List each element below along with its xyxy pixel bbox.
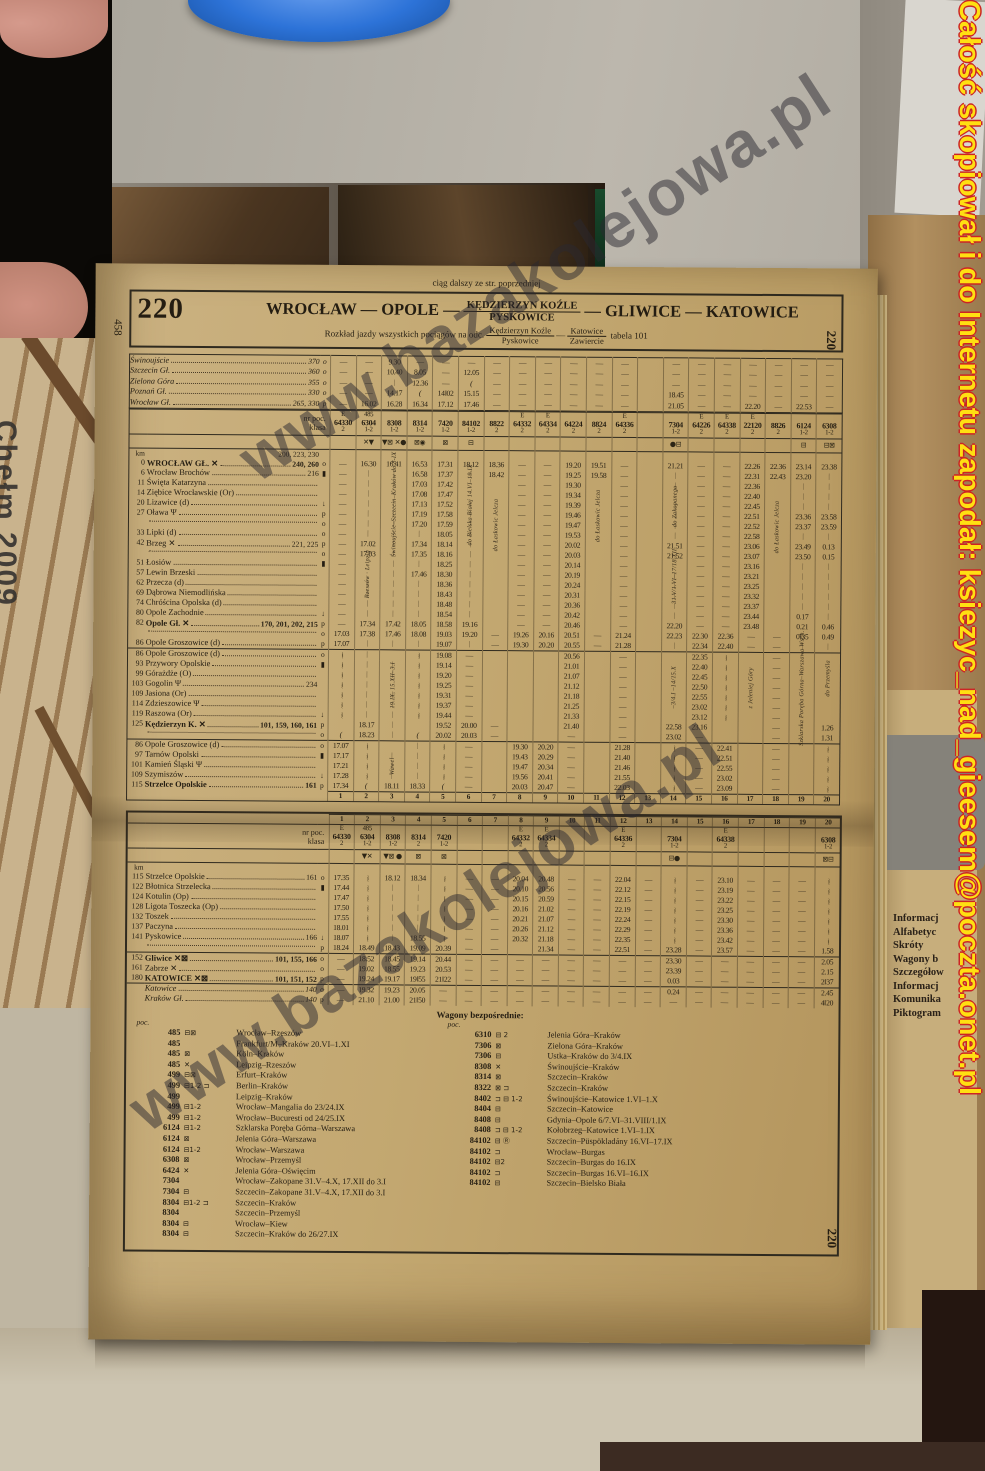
wavy-mark: ~~~ [672,908,676,913]
time-cell [764,561,790,571]
wavy-mark: ~~~ [723,655,727,660]
time-cell: 23.07 [739,551,765,561]
train-icons [535,436,561,450]
time-cell: 20.03 [456,730,482,741]
time-cell: ~~~ [354,873,380,883]
dots-leader [147,732,315,734]
time-cell [507,731,533,742]
route-note-vertical: do Zakopanego [671,485,680,527]
time-cell: ( [458,378,484,389]
time-cell: | [380,559,406,569]
time-cell: | [380,579,406,589]
stop-mark [319,478,330,488]
coach-icons: ⊟ Ⓡ [495,1136,547,1147]
time-cell: — [689,369,715,380]
time-cell: — [738,631,764,641]
time-cell [379,740,405,751]
km-cell [128,627,146,637]
train-icons [636,851,662,865]
station-inner: Przecza (d) [146,578,318,588]
train-number-cell: E221202 [740,413,766,438]
time-cell: ~~~ [661,935,687,945]
train-number: 8314 [447,1072,495,1083]
time-cell: — [635,966,661,976]
train-class: 2 [484,427,509,435]
column-number: 4 [406,814,432,824]
wavy-mark: ~~~ [416,653,420,658]
time-cell [482,710,508,720]
time-cell: 22.43 [765,471,791,481]
station-name: Brzeg ✕ [146,537,175,547]
time-cell: — [789,916,815,926]
km-cell: 115 [127,779,145,790]
time-cell: — [456,700,482,710]
train-icons [610,851,636,865]
time-cell: ( [405,730,431,741]
station-name: Lizawice (d) [147,498,190,507]
time-cell: 22.53 [791,401,817,412]
time-cell: 21.05 [663,400,689,411]
time-cell [636,551,662,561]
station-cell: Brzeg ✕221, 225 [146,537,318,548]
time-cell: — [482,943,508,954]
stop-mark: ↓ [317,709,328,719]
time-cell: 22.40 [713,641,739,652]
time-cell: 17.52 [432,499,458,509]
spacer [663,451,689,461]
time-cell: 2.05 [814,956,840,967]
wavy-mark: ~~~ [825,777,829,782]
time-cell: — [481,974,507,985]
time-cell: 23.39 [661,966,687,976]
station-cell: Dąbrowa Niemodlińska [146,587,318,598]
time-cell: — [610,620,636,630]
time-cell: | [457,639,483,650]
spacer [714,452,740,462]
train-number: 6304 [355,833,380,841]
time-cell: 22.45 [739,501,765,511]
spacer [764,866,790,876]
time-cell: | [406,579,432,589]
time-cell: –3/4.I –14/15.X [661,682,687,692]
time-cell: 18.30 [431,569,457,579]
time-cell: — [609,975,635,986]
km-cell: 82 [128,617,146,627]
time-cell: ~~~ [329,649,355,660]
time-cell [584,671,610,681]
coach-icons: ⊠ ⊐ [495,1083,547,1094]
spacer [509,450,535,460]
train-number: 6308 [817,422,842,430]
time-cell: 23.50 [790,552,816,562]
time-cell: — [713,541,739,551]
time-cell: — [611,500,637,510]
time-cell [533,731,559,742]
time-cell: — [534,500,560,510]
station-inner: Jasiona (Or) [145,689,317,699]
time-cell: — [714,369,740,380]
train-icons: ⊟⊠ [816,438,842,452]
coach-icons: ⊟ [183,1229,235,1240]
spacer [815,866,841,876]
train-prefix [739,836,764,844]
time-cell: ~~~ [328,659,354,669]
time-cell: — [714,390,740,401]
time-cell: — [509,510,535,520]
column-number: 2 [354,814,380,824]
time-cell: | [406,559,432,569]
dots-leader [224,604,316,606]
time-cell: — [714,501,740,511]
time-cell: — [456,954,482,965]
time-cell: | [790,602,816,612]
time-cell: 20.14 [560,560,586,570]
time-cell: 19.16 [457,619,483,629]
station-name: Jasiona (Or) [145,689,186,698]
time-cell: 0.24 [660,986,686,997]
time-cell: 23.16 [739,561,765,571]
time-cell [636,621,662,631]
time-cell: — [714,471,740,481]
time-cell: 21.02 [533,904,559,914]
time-cell: 16.30 [355,459,381,469]
train-class: 2 [510,427,535,435]
time-cell: — [612,389,638,400]
time-cell [764,621,790,631]
time-cell: | [457,569,483,579]
time-cell: — [584,924,610,934]
time-cell: — [509,520,535,530]
time-cell: 17.58 [432,509,458,519]
time-cell: 17.02 [355,539,381,549]
time-cell: 19.26 [508,630,534,640]
time-cell: — [329,538,355,548]
time-cell: — [687,895,713,905]
time-cell [507,691,533,701]
column-number: 7 [482,815,508,825]
time-cell: 21.18 [559,691,585,701]
timetable-page: ciąg dalszy ze str. poprzedniej 458 220 … [88,263,877,1344]
wavy-mark: ~~~ [825,939,829,944]
time-cell: | [354,700,380,710]
time-cell: — [763,753,789,763]
time-cell: — [714,481,740,491]
time-cell: — [558,742,584,753]
train-number-cell [687,826,713,851]
time-cell: — [534,490,560,500]
time-cell: — [584,914,610,924]
station-cell: Chróścina Opolska (d) [146,597,318,608]
station-inner: Oława Ψ [146,508,318,518]
time-cell: — [484,378,510,389]
time-cell: 19.08 [431,650,457,661]
train-number: 8402 [447,1093,495,1104]
time-cell: 20.41 [532,772,558,782]
time-cell: 17.28 [328,770,354,780]
time-cell: 20.00 [456,720,482,730]
time-cell: | [354,639,380,650]
train-class: 1-2 [817,430,842,438]
time-cell [737,763,763,773]
time-cell: | [380,639,406,650]
stop-mark: p [318,618,329,628]
km-cell: 86 [128,637,146,648]
time-cell: 19.47 [560,520,586,530]
time-cell: ~~~ [353,771,379,781]
time-cell: 20.47 [532,782,558,793]
time-cell: — [561,368,587,379]
time-cell [584,661,610,671]
column-number: 19 [790,817,816,827]
station-name: Wrocław Brochów [147,468,210,477]
time-cell: — [584,955,610,966]
station-cell: Zdzieszowice Ψ [145,698,317,709]
wavy-mark: ~~~ [364,754,368,759]
time-cell: — [510,368,536,379]
time-cell: 21.07 [533,914,559,924]
time-cell: — [713,571,739,581]
time-cell: — [612,357,638,368]
station-name: Szczecin Gł. [130,366,170,375]
dots-leader [177,544,289,546]
train-class: 1-2 [355,840,380,848]
coach-icons [183,1208,235,1219]
train-icons: ⊠ [432,436,458,450]
time-cell: ~~~ [354,740,380,751]
train-number-cell: E643362 [612,412,638,437]
time-cell: — [611,590,637,600]
time-cell: — [763,915,789,925]
time-cell: — [635,997,661,1007]
time-cell: — [584,894,610,904]
time-cell: — [481,995,507,1005]
km-cell: 109 [127,688,145,698]
km-cell: 42 [128,537,146,547]
km-header: km [129,448,147,458]
time-cell: — [610,691,636,701]
time-cell: — [535,378,561,389]
stop-mark: o [318,518,329,528]
time-cell: — [635,925,661,935]
time-cell: — [689,400,715,411]
time-cell: 17.07 [329,638,355,649]
train-class: 2 [329,840,354,848]
time-cell: ~~~ [430,751,456,761]
time-cell: 22.20 [740,401,766,412]
wavy-mark: ~~~ [339,672,343,677]
column-number: 16 [713,817,739,827]
station-cell: Błotnica Strzelecka [145,881,317,892]
time-cell: | [457,549,483,559]
coach-icons: ⊟1-2 ⊐ [183,1198,235,1209]
time-cell: 22.58 [739,531,765,541]
route-note-vertical: z Jeleniej Góry [746,667,755,708]
station-cell: Kędzierzyn K. ✕101, 159, 160, 161 [145,718,317,729]
time-cell: — [764,631,790,641]
time-cell [482,650,508,661]
time-cell: 18.43 [431,589,457,599]
km-cell: 6 [129,467,147,477]
coach-icons: ⊠ [183,1155,235,1166]
km-cell: 115 [127,871,145,881]
column-number: 18 [764,817,790,827]
time-cell [638,358,664,369]
time-cell: ~~~ [661,895,687,905]
time-cell: ~~~ [354,903,380,913]
time-cell: — [610,600,636,610]
station-name: Opole Groszowice (d) [146,649,220,659]
station-inner: Zielona Góra355 [130,376,320,386]
wavy-mark: ~~~ [723,705,727,710]
time-cell: — [713,561,739,571]
time-cell: | [457,559,483,569]
dots-leader [207,878,304,880]
time-cell: — [482,639,508,650]
dots-leader [209,786,304,788]
time-cell: — [763,763,789,773]
train-number-cell: 73041-2 [661,826,687,851]
wavy-mark: ~~~ [672,888,676,893]
time-cell: 23.25 [739,581,765,591]
time-cell: ~~~ [814,774,840,784]
time-cell [507,944,533,955]
train-number: 8308 [380,833,405,841]
time-cell: ~~~ [405,649,431,660]
time-cell: — [532,985,558,996]
time-cell: — [635,895,661,905]
wavy-mark: ~~~ [672,918,676,923]
time-cell: — [764,662,790,672]
km-cell [128,517,146,527]
page-number-left: 458 [109,321,126,333]
time-cell: — [329,578,355,588]
time-cell [585,590,611,600]
wavy-mark: ~~~ [416,713,420,718]
time-cell: — [533,975,559,986]
time-cell: — [558,975,584,986]
time-cell [738,652,764,663]
dots-leader [220,908,315,910]
spacer [688,451,714,461]
time-cell: | [355,599,381,609]
spacer [637,451,663,461]
time-cell: 17.37 [432,469,458,479]
km-cell: 27 [128,507,146,517]
dots-leader [188,695,315,697]
time-cell [636,672,662,682]
time-cell [584,752,610,762]
time-cell: 23.42 [712,935,738,945]
station-name: Błotnica Strzelecka [145,882,210,891]
wavy-mark: ~~~ [826,899,830,904]
time-cell: — [509,399,535,410]
time-cell: — [611,520,637,530]
km-header: km [128,862,146,872]
time-cell: 19.58 [586,470,612,480]
train-number: 84102 [447,1136,495,1147]
station-name: Opole Groszowice (d) [146,638,220,648]
time-cell: — [329,588,355,598]
coach-icons: ⊠ [184,1134,236,1145]
time-cell: — [686,945,712,956]
time-cell [482,700,508,710]
time-cell: — [559,884,585,894]
time-cell: — [789,946,815,957]
time-cell: — [484,367,510,378]
time-cell: — [763,976,789,987]
time-cell [636,641,662,652]
train-number: 7306 [447,1040,495,1051]
km-cell: 125 [127,718,145,728]
wavy-mark: ~~~ [826,889,830,894]
station-inner: Gogolin Ψ234 [145,679,317,689]
time-cell: — [456,670,482,680]
wavy-mark: ~~~ [365,876,369,881]
time-cell: — [610,661,636,671]
station-inner: Opole Gł. ✕170, 201, 202, 215 [146,617,318,628]
station-inner: Strzelce Opolskie161 [145,872,317,882]
time-cell: ~~~ [815,886,841,896]
time-cell [737,743,763,754]
time-cell: — [561,357,587,368]
time-cell: — [712,987,738,998]
time-cell: — [611,560,637,570]
time-cell: — [636,875,662,885]
time-cell: ~~~ [712,692,738,702]
time-cell: — [687,601,713,611]
station-cell: Przywory Opolskie [145,658,317,669]
time-cell: 20.56 [559,651,585,662]
time-cell: — [817,391,843,402]
wavy-mark: ~~~ [441,744,445,749]
time-cell: — [609,996,635,1006]
train-prefix [638,421,663,429]
train-prefix [636,835,661,843]
time-cell: — [585,640,611,651]
wavy-mark: ~~~ [825,929,829,934]
time-cell: — [456,964,482,974]
time-cell: | [457,599,483,609]
train-prefix [688,835,713,843]
train-number-cell: 642242 [560,412,586,437]
time-cell: 17.34 [406,539,432,549]
time-cell: 17.21 [328,760,354,770]
train-icons: ⊠ [405,849,431,863]
time-cell [508,661,534,671]
station-name: Przecza (d) [146,578,184,587]
time-cell: — [534,620,560,630]
time-cell [737,732,763,743]
dots-leader [148,521,316,523]
wavy-mark: ~~~ [826,909,830,914]
dots-leader [175,928,315,930]
time-cell: ~~~ [430,741,456,752]
wavy-mark: ~~~ [364,744,368,749]
wavy-mark: ~~~ [416,683,420,688]
time-cell: 20.53 [430,964,456,974]
time-cell [765,481,791,491]
station-inner: Opole Zachodnie [146,608,318,618]
time-cell: 23.22 [712,895,738,905]
time-cell: ~~~ [712,662,738,672]
time-cell: — [329,618,355,628]
time-cell: — [584,975,610,986]
time-cell: — [558,752,584,762]
train-class: 2 [612,428,637,436]
train-number-cell: 74201-2 [431,825,457,850]
time-cell: ~~~ [814,784,840,795]
time-cell [635,702,661,712]
